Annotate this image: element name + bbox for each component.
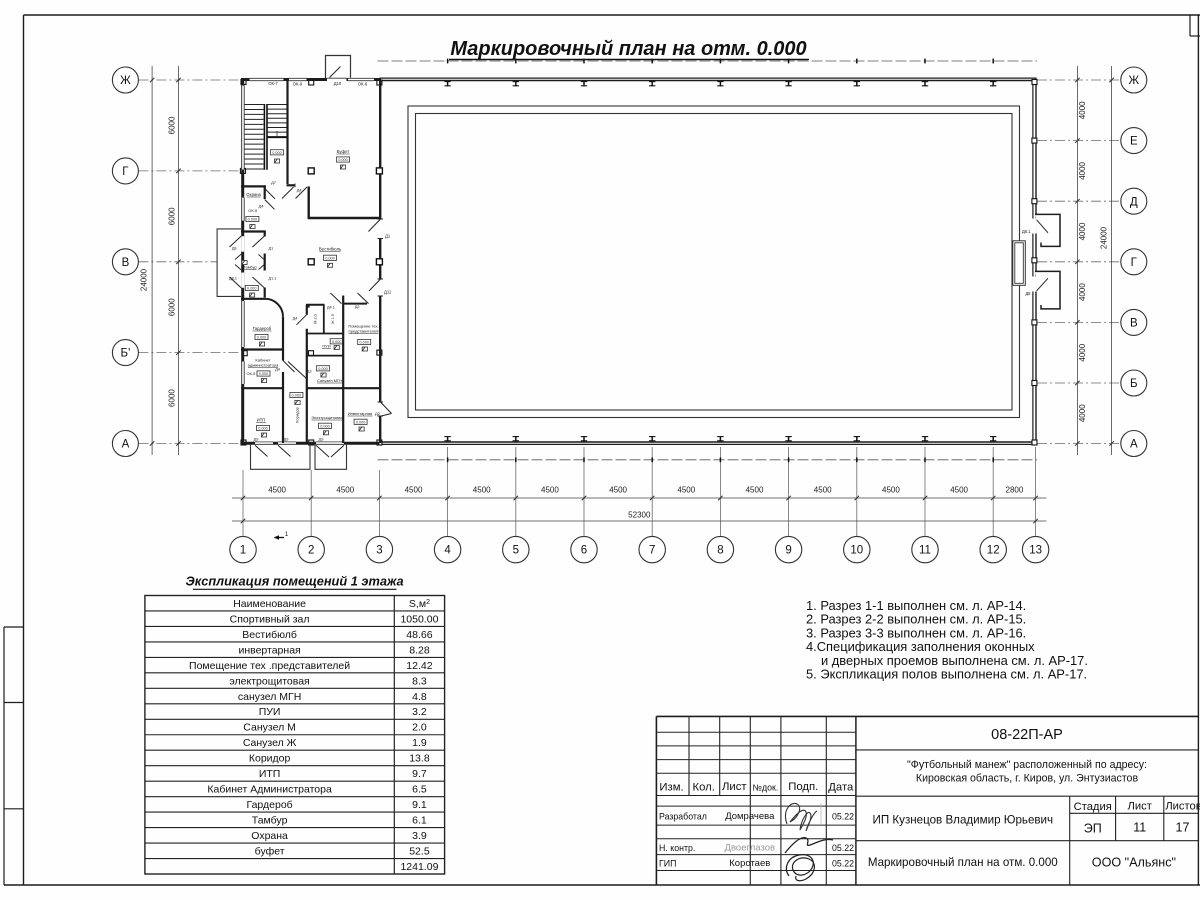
svg-text:4500: 4500: [746, 486, 764, 495]
svg-text:Д7: Д7: [271, 180, 277, 185]
svg-text:Разработал: Разработал: [659, 812, 707, 822]
svg-text:ГИП: ГИП: [659, 859, 676, 869]
svg-text:6000: 6000: [168, 116, 177, 134]
svg-text:администратора: администратора: [248, 362, 279, 367]
svg-text:санузел МГН: санузел МГН: [238, 691, 301, 703]
svg-text:Инвентарная: Инвентарная: [348, 411, 372, 416]
svg-text:ООО "Альянс": ООО "Альянс": [1092, 856, 1176, 870]
svg-text:"Футбольный манеж" расположенн: "Футбольный манеж" расположенный по адре…: [907, 759, 1147, 771]
svg-text:Н. контр.: Н. контр.: [659, 843, 695, 853]
svg-text:0.000: 0.000: [272, 151, 282, 155]
svg-text:ОК-5: ОК-5: [247, 371, 256, 376]
svg-text:Маркировочный план на отм. 0.0: Маркировочный план на отм. 0.000: [450, 38, 806, 60]
svg-text:4500: 4500: [677, 486, 695, 495]
svg-text:1.9: 1.9: [412, 737, 427, 749]
svg-text:Г: Г: [122, 166, 129, 178]
svg-text:Изм.: Изм.: [659, 782, 683, 794]
svg-text:13.8: 13.8: [409, 753, 430, 765]
svg-text:4000: 4000: [1078, 222, 1087, 240]
svg-text:Д9: Д9: [284, 436, 289, 441]
svg-text:Гардероб: Гардероб: [246, 799, 292, 811]
svg-text:0.000: 0.000: [356, 420, 366, 424]
svg-text:Д1: Д1: [269, 247, 274, 251]
svg-text:6000: 6000: [168, 389, 177, 407]
svg-text:0.000: 0.000: [259, 372, 269, 376]
svg-text:48.66: 48.66: [406, 629, 432, 641]
svg-text:Экспликация помещений 1 этажа: Экспликация помещений 1 этажа: [186, 574, 404, 589]
svg-text:Коридор: Коридор: [295, 406, 300, 423]
svg-text:Д2: Д2: [375, 411, 381, 416]
svg-text:Санузел Ж: Санузел Ж: [243, 737, 297, 749]
svg-text:4500: 4500: [541, 486, 559, 495]
svg-text:Буфет: Буфет: [337, 149, 350, 154]
svg-text:№док.: №док.: [753, 783, 779, 793]
svg-text:ОК-6: ОК-6: [358, 81, 368, 86]
svg-text:4500: 4500: [609, 486, 627, 495]
svg-text:В: В: [122, 257, 130, 269]
svg-text:6000: 6000: [168, 298, 177, 316]
svg-text:11: 11: [1133, 821, 1146, 835]
svg-text:Подп.: Подп.: [788, 781, 818, 793]
svg-text:2.0: 2.0: [412, 722, 427, 734]
svg-text:Наименование: Наименование: [233, 598, 306, 610]
svg-text:0.000: 0.000: [338, 158, 348, 162]
svg-text:Д8.1: Д8.1: [229, 276, 237, 280]
svg-text:Г: Г: [1131, 257, 1138, 269]
svg-text:ОК-9: ОК-9: [293, 81, 303, 86]
svg-text:Д8: Д8: [232, 247, 237, 251]
svg-text:8.3: 8.3: [412, 675, 427, 687]
svg-text:3: 3: [376, 545, 382, 557]
svg-text:В: В: [1130, 318, 1138, 330]
svg-text:Д4.1: Д4.1: [327, 306, 335, 310]
svg-text:3.9: 3.9: [412, 830, 427, 842]
svg-text:Коротаев: Коротаев: [729, 858, 770, 869]
svg-text:Двоеглазов: Двоеглазов: [725, 843, 776, 854]
svg-text:0.000: 0.000: [359, 341, 369, 345]
svg-text:10: 10: [850, 545, 863, 557]
svg-text:6: 6: [581, 545, 587, 557]
svg-text:0.000: 0.000: [258, 427, 268, 431]
svg-text:24000: 24000: [1100, 226, 1109, 249]
svg-text:4500: 4500: [268, 486, 286, 495]
svg-text:13: 13: [1029, 545, 1042, 557]
svg-text:А: А: [1130, 439, 1138, 451]
svg-text:ОК-7: ОК-7: [268, 81, 278, 86]
svg-text:0.000: 0.000: [332, 340, 342, 344]
svg-text:0.000: 0.000: [292, 394, 302, 398]
svg-text:Ж: Ж: [1128, 75, 1139, 87]
svg-text:52.5: 52.5: [409, 845, 430, 857]
svg-text:ИТП: ИТП: [259, 768, 281, 780]
svg-text:9: 9: [785, 545, 791, 557]
svg-text:Д: Д: [1130, 196, 1138, 208]
svg-text:Охрана: Охрана: [251, 830, 288, 842]
svg-text:Спортивный зал: Спортивный зал: [230, 613, 310, 625]
svg-text:Лист: Лист: [722, 781, 747, 793]
svg-text:Кабинет Администратора: Кабинет Администратора: [207, 784, 332, 796]
svg-text:Вестибюль: Вестибюль: [319, 247, 342, 252]
svg-text:ПУИ: ПУИ: [259, 706, 281, 718]
svg-text:Санузел М: Санузел М: [243, 722, 296, 734]
svg-text:2: 2: [308, 545, 314, 557]
svg-text:5. Экспликация полов выполнена: 5. Экспликация полов выполнена см. л. АР…: [806, 667, 1087, 682]
svg-text:Д8: Д8: [1025, 291, 1031, 296]
svg-text:Ж 1.9: Ж 1.9: [331, 314, 335, 324]
svg-text:1050.00: 1050.00: [400, 613, 438, 625]
svg-text:0.000: 0.000: [325, 256, 335, 260]
svg-text:представителей: представителей: [349, 329, 379, 334]
svg-text:Коридор: Коридор: [249, 753, 291, 765]
svg-text:Санузел МГН: Санузел МГН: [317, 378, 342, 383]
svg-text:Д9: Д9: [254, 436, 259, 441]
svg-text:5: 5: [513, 545, 519, 557]
svg-text:Д10: Д10: [334, 81, 342, 86]
svg-text:Дата: Дата: [828, 782, 854, 794]
svg-text:ПУИ: ПУИ: [322, 344, 330, 349]
svg-text:12.42: 12.42: [406, 660, 432, 672]
svg-text:0.000: 0.000: [318, 367, 328, 371]
svg-text:4500: 4500: [814, 486, 832, 495]
svg-text:Листов: Листов: [1165, 801, 1200, 813]
svg-text:ИП Кузнецов Владимир Юрьевич: ИП Кузнецов Владимир Юрьевич: [873, 814, 1054, 827]
svg-text:7: 7: [649, 545, 655, 557]
svg-text:Д11: Д11: [384, 290, 392, 295]
svg-text:9.1: 9.1: [412, 799, 427, 811]
svg-text:08-22П-АР: 08-22П-АР: [991, 727, 1063, 743]
svg-text:05.22: 05.22: [832, 859, 854, 869]
svg-text:Е: Е: [1130, 136, 1138, 148]
svg-text:8: 8: [717, 545, 723, 557]
svg-text:9.7: 9.7: [412, 768, 427, 780]
svg-text:4.8: 4.8: [412, 691, 427, 703]
svg-text:0.000: 0.000: [248, 218, 258, 222]
svg-text:8.28: 8.28: [409, 644, 430, 656]
svg-text:Д9: Д9: [319, 436, 324, 441]
svg-text:0.000: 0.000: [257, 336, 267, 340]
svg-text:1: 1: [240, 545, 246, 557]
svg-text:Гардероб: Гардероб: [253, 326, 272, 331]
svg-text:4: 4: [444, 545, 451, 557]
svg-text:3.2: 3.2: [412, 706, 427, 718]
svg-text:инвертарная: инвертарная: [238, 644, 300, 656]
svg-text:52300: 52300: [628, 511, 651, 520]
svg-text:электрощитовая: электрощитовая: [229, 675, 309, 687]
svg-text:4500: 4500: [950, 486, 968, 495]
svg-text:Электрощитовая: Электрощитовая: [311, 415, 342, 420]
svg-text:4500: 4500: [882, 486, 900, 495]
svg-text:Д8.1: Д8.1: [1022, 229, 1031, 234]
svg-text:0.000: 0.000: [320, 424, 330, 428]
svg-text:Кол.: Кол.: [693, 782, 715, 794]
svg-text:05.22: 05.22: [832, 843, 854, 853]
svg-text:Б': Б': [121, 348, 131, 360]
svg-text:Д1.1: Д1.1: [269, 276, 277, 280]
svg-text:4000: 4000: [1078, 283, 1087, 301]
svg-text:6000: 6000: [168, 207, 177, 225]
svg-text:буфет: буфет: [255, 845, 285, 857]
svg-text:4500: 4500: [405, 486, 423, 495]
svg-text:4000: 4000: [1078, 404, 1087, 422]
svg-text:11: 11: [919, 545, 931, 557]
svg-text:Д4: Д4: [259, 204, 265, 209]
svg-text:4500: 4500: [473, 486, 491, 495]
svg-text:2800: 2800: [1006, 486, 1024, 495]
svg-text:24000: 24000: [140, 268, 149, 291]
svg-text:Д2: Д2: [355, 305, 360, 309]
svg-text:6.1: 6.1: [412, 815, 427, 827]
svg-text:Ж: Ж: [120, 75, 131, 87]
svg-text:05.22: 05.22: [832, 812, 854, 822]
svg-text:4000: 4000: [1078, 101, 1087, 119]
svg-text:ОК-5: ОК-5: [248, 208, 257, 213]
svg-text:ЭП: ЭП: [1084, 822, 1102, 836]
svg-text:Тамбур: Тамбур: [252, 815, 288, 827]
svg-text:Кировская область, г. Киров, у: Кировская область, г. Киров, ул. Энтузиа…: [916, 773, 1139, 785]
svg-text:Помещение тех .представителей: Помещение тех .представителей: [189, 660, 350, 672]
svg-text:Д1: Д1: [385, 234, 391, 239]
svg-text:А: А: [122, 439, 130, 451]
svg-text:Вестибюлб: Вестибюлб: [242, 629, 297, 641]
svg-text:0.000: 0.000: [247, 287, 257, 291]
svg-text:Тамбур: Тамбур: [243, 265, 257, 270]
svg-text:Б: Б: [1130, 378, 1138, 390]
svg-text:17: 17: [1176, 821, 1190, 835]
svg-text:4000: 4000: [1078, 343, 1087, 361]
svg-text:ИТП: ИТП: [257, 418, 266, 423]
svg-text:Д4: Д4: [293, 316, 299, 321]
svg-text:Домрачева: Домрачева: [725, 811, 775, 822]
svg-text:4500: 4500: [336, 486, 354, 495]
svg-text:12: 12: [987, 545, 1000, 557]
svg-text:1241.09: 1241.09: [400, 861, 438, 873]
svg-text:Лист: Лист: [1128, 801, 1152, 813]
svg-text:Д3: Д3: [307, 369, 313, 374]
svg-text:М 2.0: М 2.0: [314, 314, 318, 324]
svg-text:Охрана: Охрана: [246, 192, 261, 197]
svg-text:Стадия: Стадия: [1074, 801, 1112, 813]
svg-text:Маркировочный план на отм. 0.0: Маркировочный план на отм. 0.000: [868, 856, 1058, 869]
svg-text:6.5: 6.5: [412, 784, 427, 796]
svg-text:4000: 4000: [1078, 161, 1087, 179]
